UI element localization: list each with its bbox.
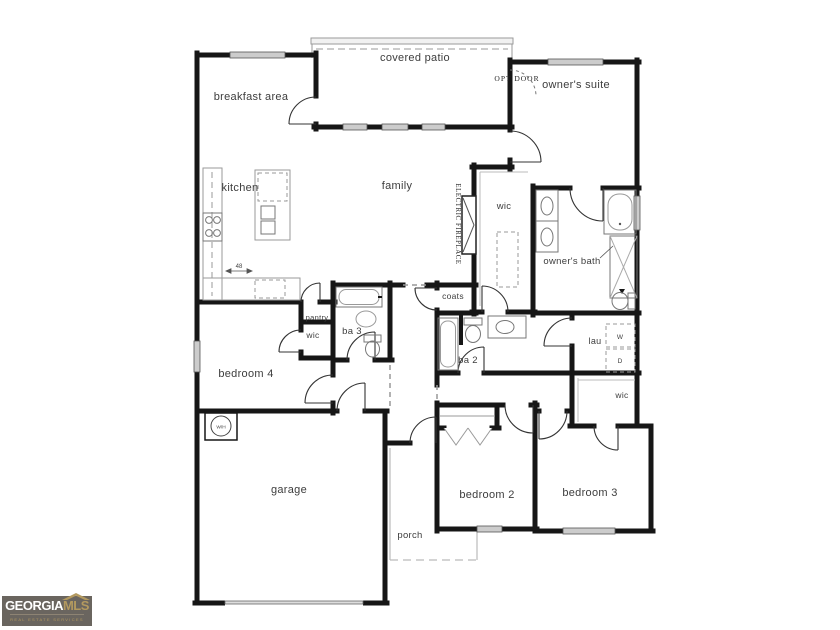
walls [195, 53, 653, 603]
garage-door [225, 599, 363, 607]
dryer-label: D [618, 358, 623, 365]
room-label-owners-suite: owner's suite [542, 79, 610, 91]
logo-tagline: REAL ESTATE SERVICES [10, 614, 84, 622]
owners-bath-tub [604, 190, 636, 234]
room-label-laundry: lau [589, 336, 602, 346]
owners-bath-toilet [612, 293, 635, 310]
fireplace [462, 196, 476, 254]
logo-brand-secondary: MLS [63, 599, 89, 612]
room-label-ba3: ba 3 [342, 326, 362, 337]
room-label-bedroom4: bedroom 4 [218, 368, 273, 380]
room-label-kitchen: kitchen [222, 182, 259, 194]
room-label-bedroom4-wic: wic [305, 330, 320, 340]
water-heater-label: W/H [216, 425, 226, 431]
room-label-bedroom3: bedroom 3 [562, 487, 617, 499]
electric-fireplace-label: ELECTRIC FIREPLACE [454, 183, 461, 264]
windows [194, 52, 640, 534]
room-label-owners-bath: owner's bath [543, 256, 600, 267]
opt-door-label: OPT DOOR [494, 74, 539, 83]
room-label-pantry: pantry [306, 313, 329, 322]
owners-bath-pointer [600, 246, 613, 258]
ba2-fixtures [438, 315, 526, 370]
owners-bath-vanity [536, 190, 558, 252]
washer-label: W [617, 334, 624, 341]
room-label-breakfast-area: breakfast area [214, 91, 289, 103]
floorplan-drawing: breakfast area covered patio owner's sui… [0, 0, 840, 630]
owners-bath-shower [610, 236, 637, 298]
georgia-mls-logo: GEORGIAMLS REAL ESTATE SERVICES [2, 596, 92, 626]
room-label-covered-patio: covered patio [380, 52, 450, 64]
porch-outline [390, 448, 477, 560]
room-label-family: family [382, 180, 413, 192]
owners-wic-shelving [480, 172, 528, 306]
door-swings [279, 97, 618, 450]
room-label-bedroom3-wic: wic [614, 390, 629, 400]
room-label-owners-wic: wic [496, 201, 512, 212]
logo-brand-primary: GEORGIA [5, 599, 63, 612]
room-label-bedroom2: bedroom 2 [459, 489, 514, 501]
room-label-garage: garage [271, 484, 307, 496]
bedroom3-wic-shelving [578, 378, 635, 422]
cased-openings [390, 285, 437, 410]
room-label-ba2: ba 2 [458, 355, 478, 366]
kitchen-island [255, 170, 290, 240]
logo-brand-row: GEORGIAMLS [5, 599, 89, 612]
bedroom2-closet [440, 416, 495, 445]
room-label-porch: porch [397, 530, 422, 541]
room-label-coats: coats [442, 291, 464, 301]
island-dimension-label: 48 [236, 264, 243, 270]
floorplan-canvas: breakfast area covered patio owner's sui… [0, 0, 840, 630]
roof-icon [61, 593, 91, 600]
